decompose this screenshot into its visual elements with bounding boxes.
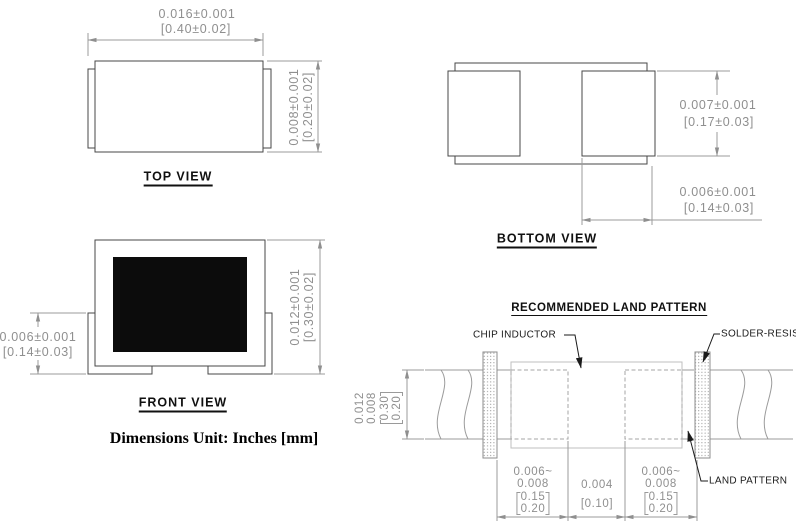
land-pattern-label: LAND PATTERN — [709, 476, 787, 487]
land-pad-right-dim: 0.006~ 0.008 0.15 0.20 — [641, 467, 680, 515]
land-pattern-title: RECOMMENDED LAND PATTERN — [511, 302, 707, 316]
front-view-height-dim-mm: [0.30±0.02] — [302, 247, 316, 367]
front-view-core — [113, 257, 247, 352]
chip-inductor-label: CHIP INDUCTOR — [473, 330, 556, 341]
top-view-right-terminal — [263, 69, 271, 148]
land-pattern-band-width-dim: 0.012 0.008 0.30 0.20 — [355, 385, 403, 431]
bottom-view-pad-width-inches: 0.006±0.001 — [679, 185, 756, 199]
land-pad-left-inches-1: 0.006~ — [513, 467, 552, 479]
land-pad-left-mm-2: 0.20 — [521, 504, 546, 516]
bottom-view-pad-height-inches: 0.007±0.001 — [679, 98, 756, 112]
front-view-terminal-height-mm: [0.14±0.03] — [3, 345, 73, 359]
land-pad-right-inches-2: 0.008 — [641, 479, 680, 491]
top-view-width-dim: 0.008±0.001 [0.20±0.02] — [287, 47, 315, 167]
front-view-height-dim: 0.012±0.001 [0.30±0.02] — [288, 247, 316, 367]
band-width-mm-1: 0.30 — [380, 396, 392, 421]
top-view-length-dim-inches: 0.016±0.001 — [158, 7, 235, 21]
top-view-length-dim-mm: [0.40±0.02] — [161, 22, 231, 36]
band-width-inches-2: 0.008 — [367, 385, 379, 431]
band-width-inches-1: 0.012 — [355, 385, 367, 431]
land-pad-left — [511, 370, 568, 439]
front-view-terminal-height-inches: 0.006±0.001 — [0, 330, 77, 344]
front-view-drawing — [30, 240, 325, 374]
land-gap-dim: 0.004 [0.10] — [581, 480, 613, 510]
top-view-label: TOP VIEW — [144, 170, 213, 187]
band-width-mm-2: 0.20 — [392, 396, 404, 421]
front-view-height-dim-inches: 0.012±0.001 — [288, 247, 302, 367]
break-line — [437, 370, 445, 439]
bottom-view-label: BOTTOM VIEW — [497, 232, 597, 249]
land-pad-right-mm-1: 0.15 — [649, 492, 674, 504]
land-pad-right — [625, 370, 682, 439]
solder-resist-left — [483, 352, 497, 458]
break-line — [464, 370, 472, 439]
solder-resist-label: SOLDER-RESIST — [721, 329, 796, 340]
land-pad-left-mm-1: 0.15 — [521, 492, 546, 504]
bottom-view-left-pad — [448, 71, 520, 156]
units-note: Dimensions Unit: Inches [mm] — [110, 430, 318, 448]
solder-resist-right — [695, 352, 710, 458]
top-view-width-dim-mm: [0.20±0.02] — [301, 47, 315, 167]
break-line — [737, 370, 745, 439]
top-view-left-terminal — [88, 69, 95, 148]
bottom-view-pad-height-mm: [0.17±0.03] — [684, 115, 754, 129]
land-pad-right-mm-2: 0.20 — [649, 504, 674, 516]
land-pad-left-inches-2: 0.008 — [513, 479, 552, 491]
land-pad-right-inches-1: 0.006~ — [641, 467, 680, 479]
top-view-width-dim-inches: 0.008±0.001 — [287, 47, 301, 167]
bottom-view-right-pad — [582, 71, 655, 156]
chip-inductor-leader — [564, 335, 581, 368]
top-view-body — [95, 61, 263, 152]
land-pad-left-dim: 0.006~ 0.008 0.15 0.20 — [513, 467, 552, 515]
land-gap-inches: 0.004 — [581, 480, 613, 492]
chip-inductor-outline — [511, 362, 682, 448]
front-view-label: FRONT VIEW — [139, 396, 227, 413]
mechanical-drawing-sheet: 0.016±0.001 [0.40±0.02] 0.008±0.001 [0.2… — [0, 0, 796, 525]
land-gap-mm: [0.10] — [581, 499, 613, 511]
break-line — [764, 370, 772, 439]
bottom-view-pad-width-mm: [0.14±0.03] — [684, 201, 754, 215]
